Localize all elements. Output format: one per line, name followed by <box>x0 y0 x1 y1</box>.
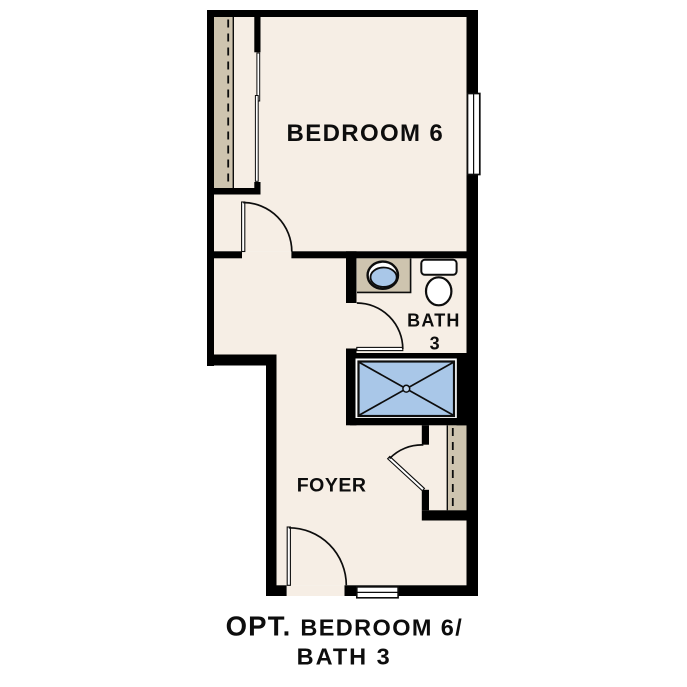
svg-text:OPT. BEDROOM 6/: OPT. BEDROOM 6/ <box>226 610 464 641</box>
svg-text:3: 3 <box>430 333 440 353</box>
svg-text:BATH 3: BATH 3 <box>297 643 392 669</box>
svg-text:FOYER: FOYER <box>297 474 367 496</box>
svg-text:BATH: BATH <box>407 310 460 330</box>
svg-text:BEDROOM 6: BEDROOM 6 <box>287 120 445 147</box>
